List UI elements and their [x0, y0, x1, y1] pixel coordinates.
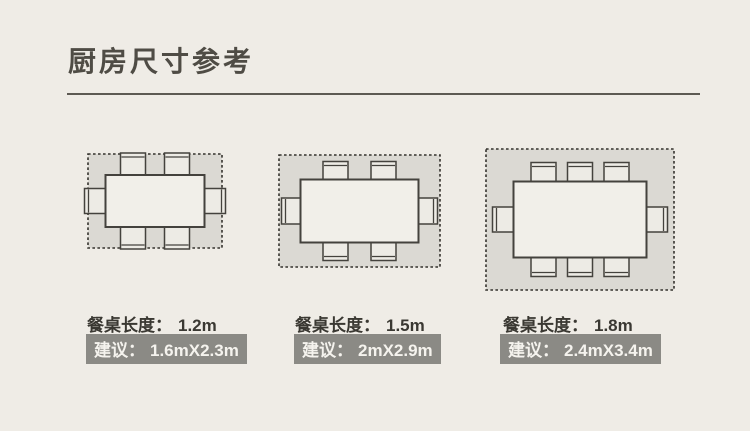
- table-length-label: 餐桌长度：: [503, 316, 588, 335]
- title-underline: [67, 93, 700, 95]
- floorplan-diagram-6-seat-medium: [273, 149, 446, 273]
- table-length-row: 餐桌长度：1.2m: [87, 311, 217, 336]
- suggested-size-badge: 建议：2mX2.9m: [294, 334, 441, 364]
- suggestion-value: 1.6mX2.3m: [150, 341, 239, 360]
- suggestion-label: 建议：: [302, 341, 353, 360]
- page-title: 厨房尺寸参考: [68, 40, 254, 80]
- table-length-row: 餐桌长度：1.8m: [503, 311, 633, 336]
- floorplan-diagram-8-seat-large: [480, 143, 680, 296]
- table-length-label: 餐桌长度：: [295, 316, 380, 335]
- table-length-row: 餐桌长度：1.5m: [295, 311, 425, 336]
- table-length-label: 餐桌长度：: [87, 316, 172, 335]
- table-length-value: 1.2m: [178, 316, 217, 335]
- suggestion-label: 建议：: [94, 341, 145, 360]
- suggested-size-badge: 建议：2.4mX3.4m: [500, 334, 661, 364]
- kitchen-size-reference-page: 厨房尺寸参考 餐桌长度：1.2m 建议：1.6mX2.3m 餐桌长度：1.5m …: [0, 0, 750, 431]
- table-length-value: 1.8m: [594, 316, 633, 335]
- suggestion-value: 2.4mX3.4m: [564, 341, 653, 360]
- suggestion-value: 2mX2.9m: [358, 341, 433, 360]
- floorplan-diagram-6-seat-small: [82, 148, 228, 254]
- table-length-value: 1.5m: [386, 316, 425, 335]
- suggested-size-badge: 建议：1.6mX2.3m: [86, 334, 247, 364]
- suggestion-label: 建议：: [508, 341, 559, 360]
